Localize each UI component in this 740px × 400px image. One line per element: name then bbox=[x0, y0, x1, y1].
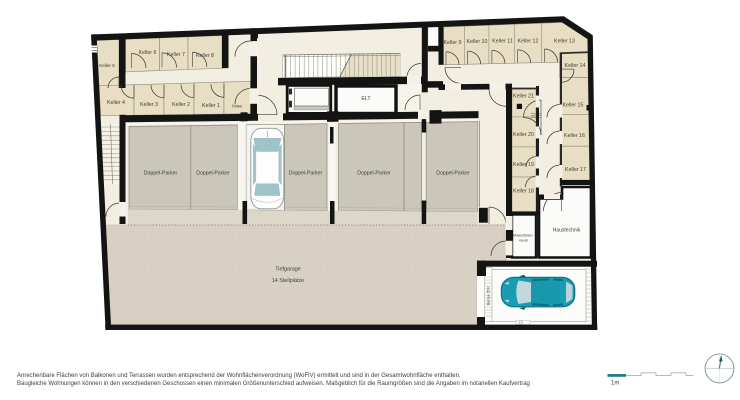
svg-text:Doppel-Parker: Doppel-Parker bbox=[196, 171, 230, 177]
svg-text:Keller 1: Keller 1 bbox=[202, 103, 220, 109]
svg-text:Keller 3: Keller 3 bbox=[140, 102, 158, 108]
svg-text:Keller 11: Keller 11 bbox=[492, 39, 513, 45]
svg-text:Keller 8: Keller 8 bbox=[196, 53, 214, 59]
svg-text:Keller 12: Keller 12 bbox=[518, 39, 539, 45]
svg-text:Doppel-Parker: Doppel-Parker bbox=[144, 171, 178, 177]
svg-text:14 Stellplätze: 14 Stellplätze bbox=[272, 278, 304, 284]
svg-text:Keller 18: Keller 18 bbox=[513, 189, 534, 195]
svg-text:Keller 4: Keller 4 bbox=[107, 100, 125, 106]
svg-text:Keller 16: Keller 16 bbox=[564, 133, 585, 139]
svg-text:Keller 6: Keller 6 bbox=[139, 50, 157, 56]
svg-text:Keller 10: Keller 10 bbox=[467, 39, 488, 45]
svg-text:Anrechenbare Flächen von Balko: Anrechenbare Flächen von Balkonen und Te… bbox=[17, 373, 461, 379]
svg-text:Doppel-Parker: Doppel-Parker bbox=[289, 171, 323, 177]
svg-text:Doppel-Parker: Doppel-Parker bbox=[357, 171, 391, 177]
svg-text:Keller 5: Keller 5 bbox=[99, 63, 115, 68]
svg-text:Keller 7: Keller 7 bbox=[167, 52, 185, 58]
svg-text:Keller 20: Keller 20 bbox=[513, 132, 534, 138]
svg-text:Keller 2: Keller 2 bbox=[172, 102, 190, 108]
svg-text:1m: 1m bbox=[611, 381, 619, 387]
svg-text:Keller 19: Keller 19 bbox=[513, 162, 534, 168]
svg-text:Tiefgarage: Tiefgarage bbox=[275, 267, 301, 273]
svg-text:raum: raum bbox=[519, 238, 529, 243]
svg-text:Rampe 15%: Rampe 15% bbox=[486, 287, 490, 305]
svg-text:Kiwa: Kiwa bbox=[232, 104, 242, 109]
svg-text:Baugleiche Wohnungen können in: Baugleiche Wohnungen können in den versc… bbox=[17, 381, 530, 387]
svg-text:Keller 13: Keller 13 bbox=[554, 39, 575, 45]
svg-text:Keller 15: Keller 15 bbox=[563, 102, 584, 108]
svg-text:Haustechnik: Haustechnik bbox=[553, 228, 581, 234]
svg-text:Keller 9: Keller 9 bbox=[444, 40, 462, 46]
svg-text:Keller 21: Keller 21 bbox=[513, 94, 534, 100]
svg-text:ELT: ELT bbox=[361, 96, 371, 102]
svg-text:Doppel-Parker: Doppel-Parker bbox=[436, 171, 470, 177]
svg-text:Keller 17: Keller 17 bbox=[565, 167, 586, 173]
svg-text:Keller 14: Keller 14 bbox=[565, 63, 586, 69]
